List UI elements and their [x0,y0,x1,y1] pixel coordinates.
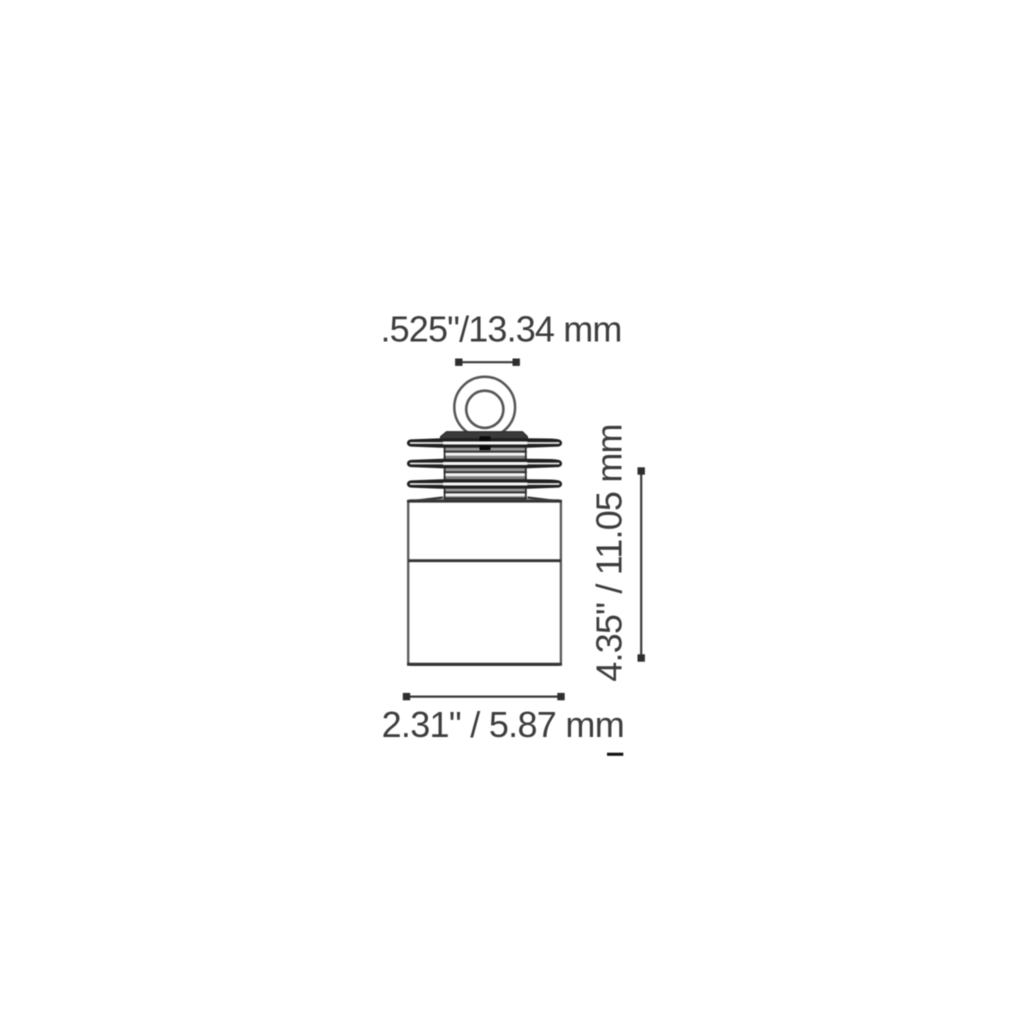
svg-text:.525"/13.34 mm: .525"/13.34 mm [380,309,621,350]
svg-text:4.35" / 11.05 mm: 4.35" / 11.05 mm [589,424,630,681]
svg-text:2.31" / 5.87 mm: 2.31" / 5.87 mm [382,704,624,745]
